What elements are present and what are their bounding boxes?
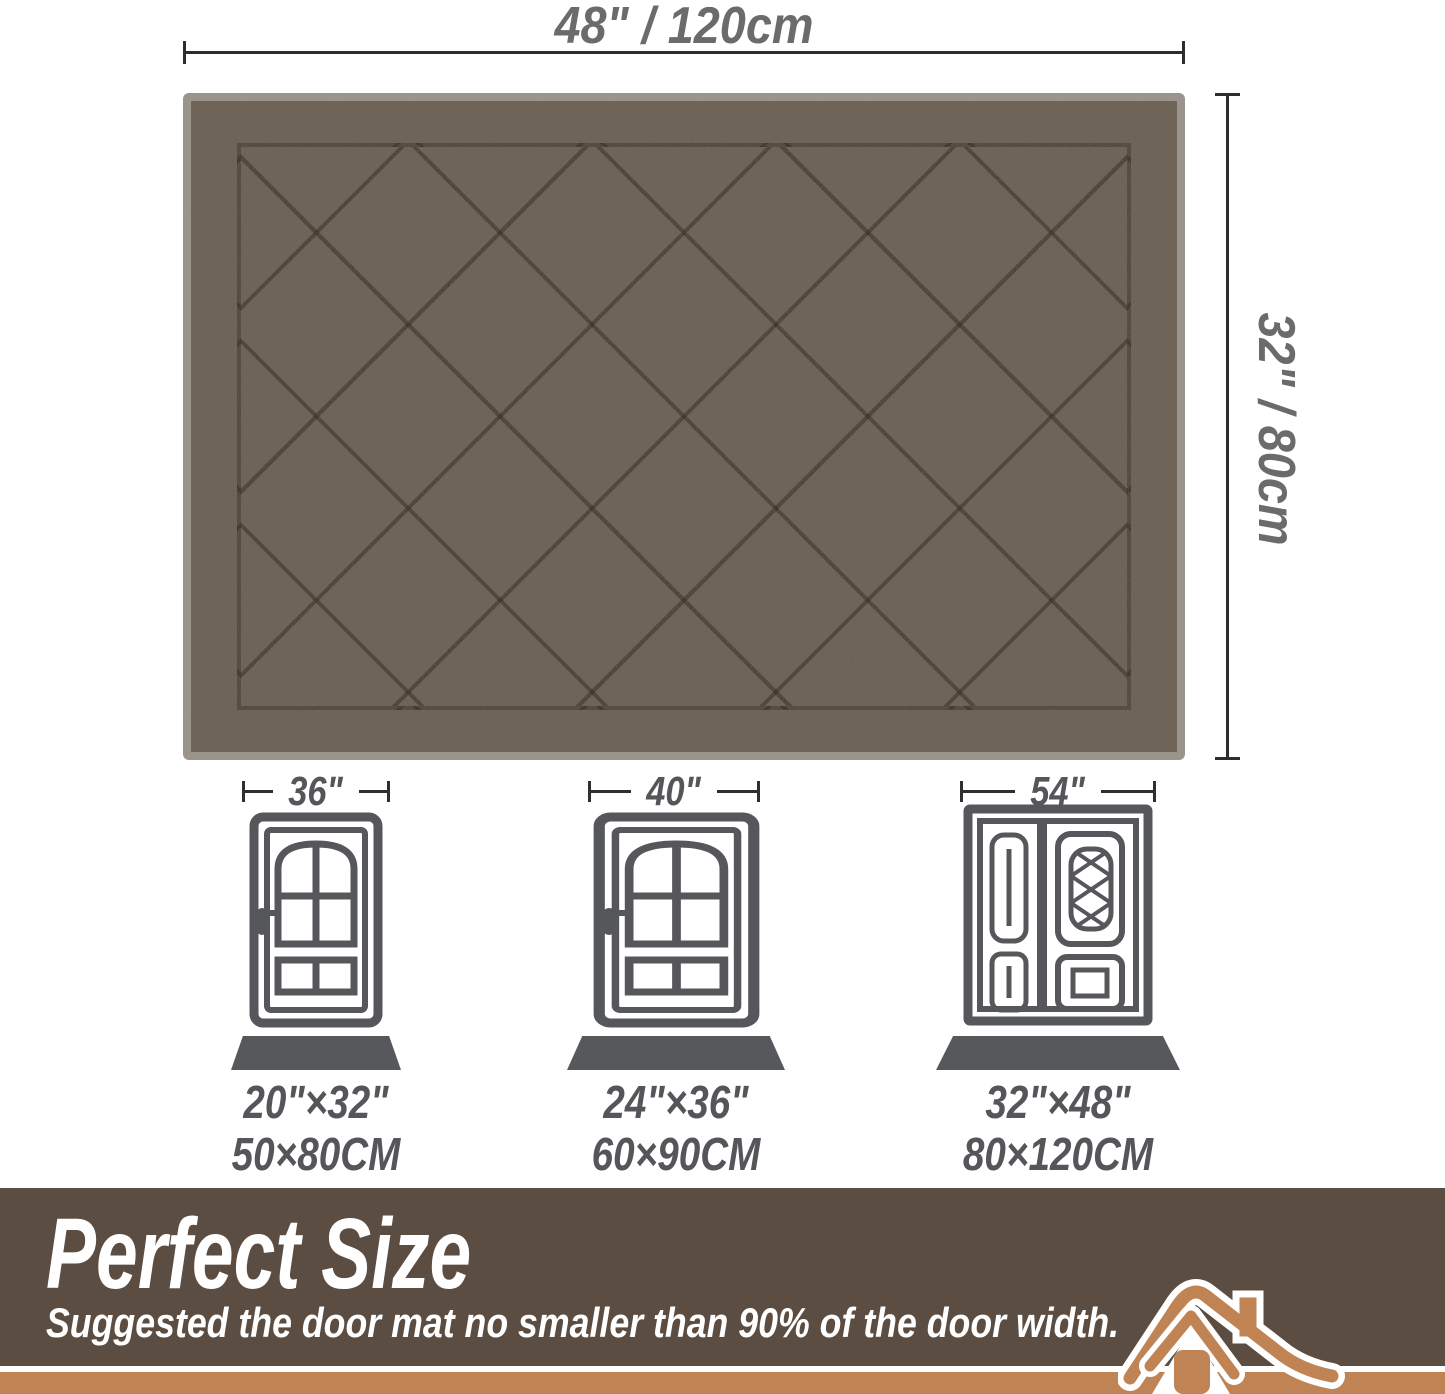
floor-mat-icon [567,1036,785,1070]
floor-mat-icon [231,1036,401,1070]
floor-mat-icon [936,1036,1180,1070]
door-width-label: 40" [647,771,702,812]
dimension-end-cap [387,781,390,802]
mat-size-label: 32"×48" 80×120CM [924,1076,1193,1180]
door-width-dimension: 40" [588,770,760,812]
mat-size-inches: 32"×48" [924,1076,1193,1128]
banner-subtitle: Suggested the door mat no smaller than 9… [46,1302,1119,1344]
mat-size-cm: 50×80CM [182,1128,451,1180]
mat-width-dimension-line [183,51,1185,54]
dimension-line [591,790,631,793]
mat-size-label: 20"×32" 50×80CM [182,1076,451,1180]
dimension-line [245,790,273,793]
dimension-end-cap [1215,93,1240,96]
single-door-icon [593,812,760,1028]
dimension-end-cap [1182,41,1185,64]
house-icon [1118,1252,1445,1394]
dimension-line [1101,790,1153,793]
dimension-line [359,790,387,793]
banner-title: Perfect Size [46,1204,471,1304]
dimension-end-cap [1215,757,1240,760]
mat-size-cm: 80×120CM [924,1128,1193,1180]
mat-size-cm: 60×90CM [542,1128,811,1180]
door-width-dimension: 36" [242,770,390,812]
mat-size-label: 24"×36" 60×90CM [542,1076,811,1180]
single-door-icon [249,812,383,1028]
mat-height-label: 32" / 80cm [1247,204,1305,654]
mat-width-label: 48" / 120cm [233,0,1135,56]
dimension-end-cap [183,41,186,64]
doormat-diamond-pattern [237,143,1131,710]
dimension-line [717,790,757,793]
doormat-size-infographic: 48" / 120cm 32" / 80cm 36" [0,0,1445,1394]
doormat-image [183,93,1185,760]
mat-height-dimension-line [1226,93,1229,760]
dimension-line [963,790,1015,793]
door-width-label: 36" [289,771,344,812]
mat-size-inches: 20"×32" [182,1076,451,1128]
double-door-icon [963,804,1153,1026]
mat-size-inches: 24"×36" [542,1076,811,1128]
dimension-end-cap [757,781,760,802]
dimension-end-cap [1153,781,1156,802]
